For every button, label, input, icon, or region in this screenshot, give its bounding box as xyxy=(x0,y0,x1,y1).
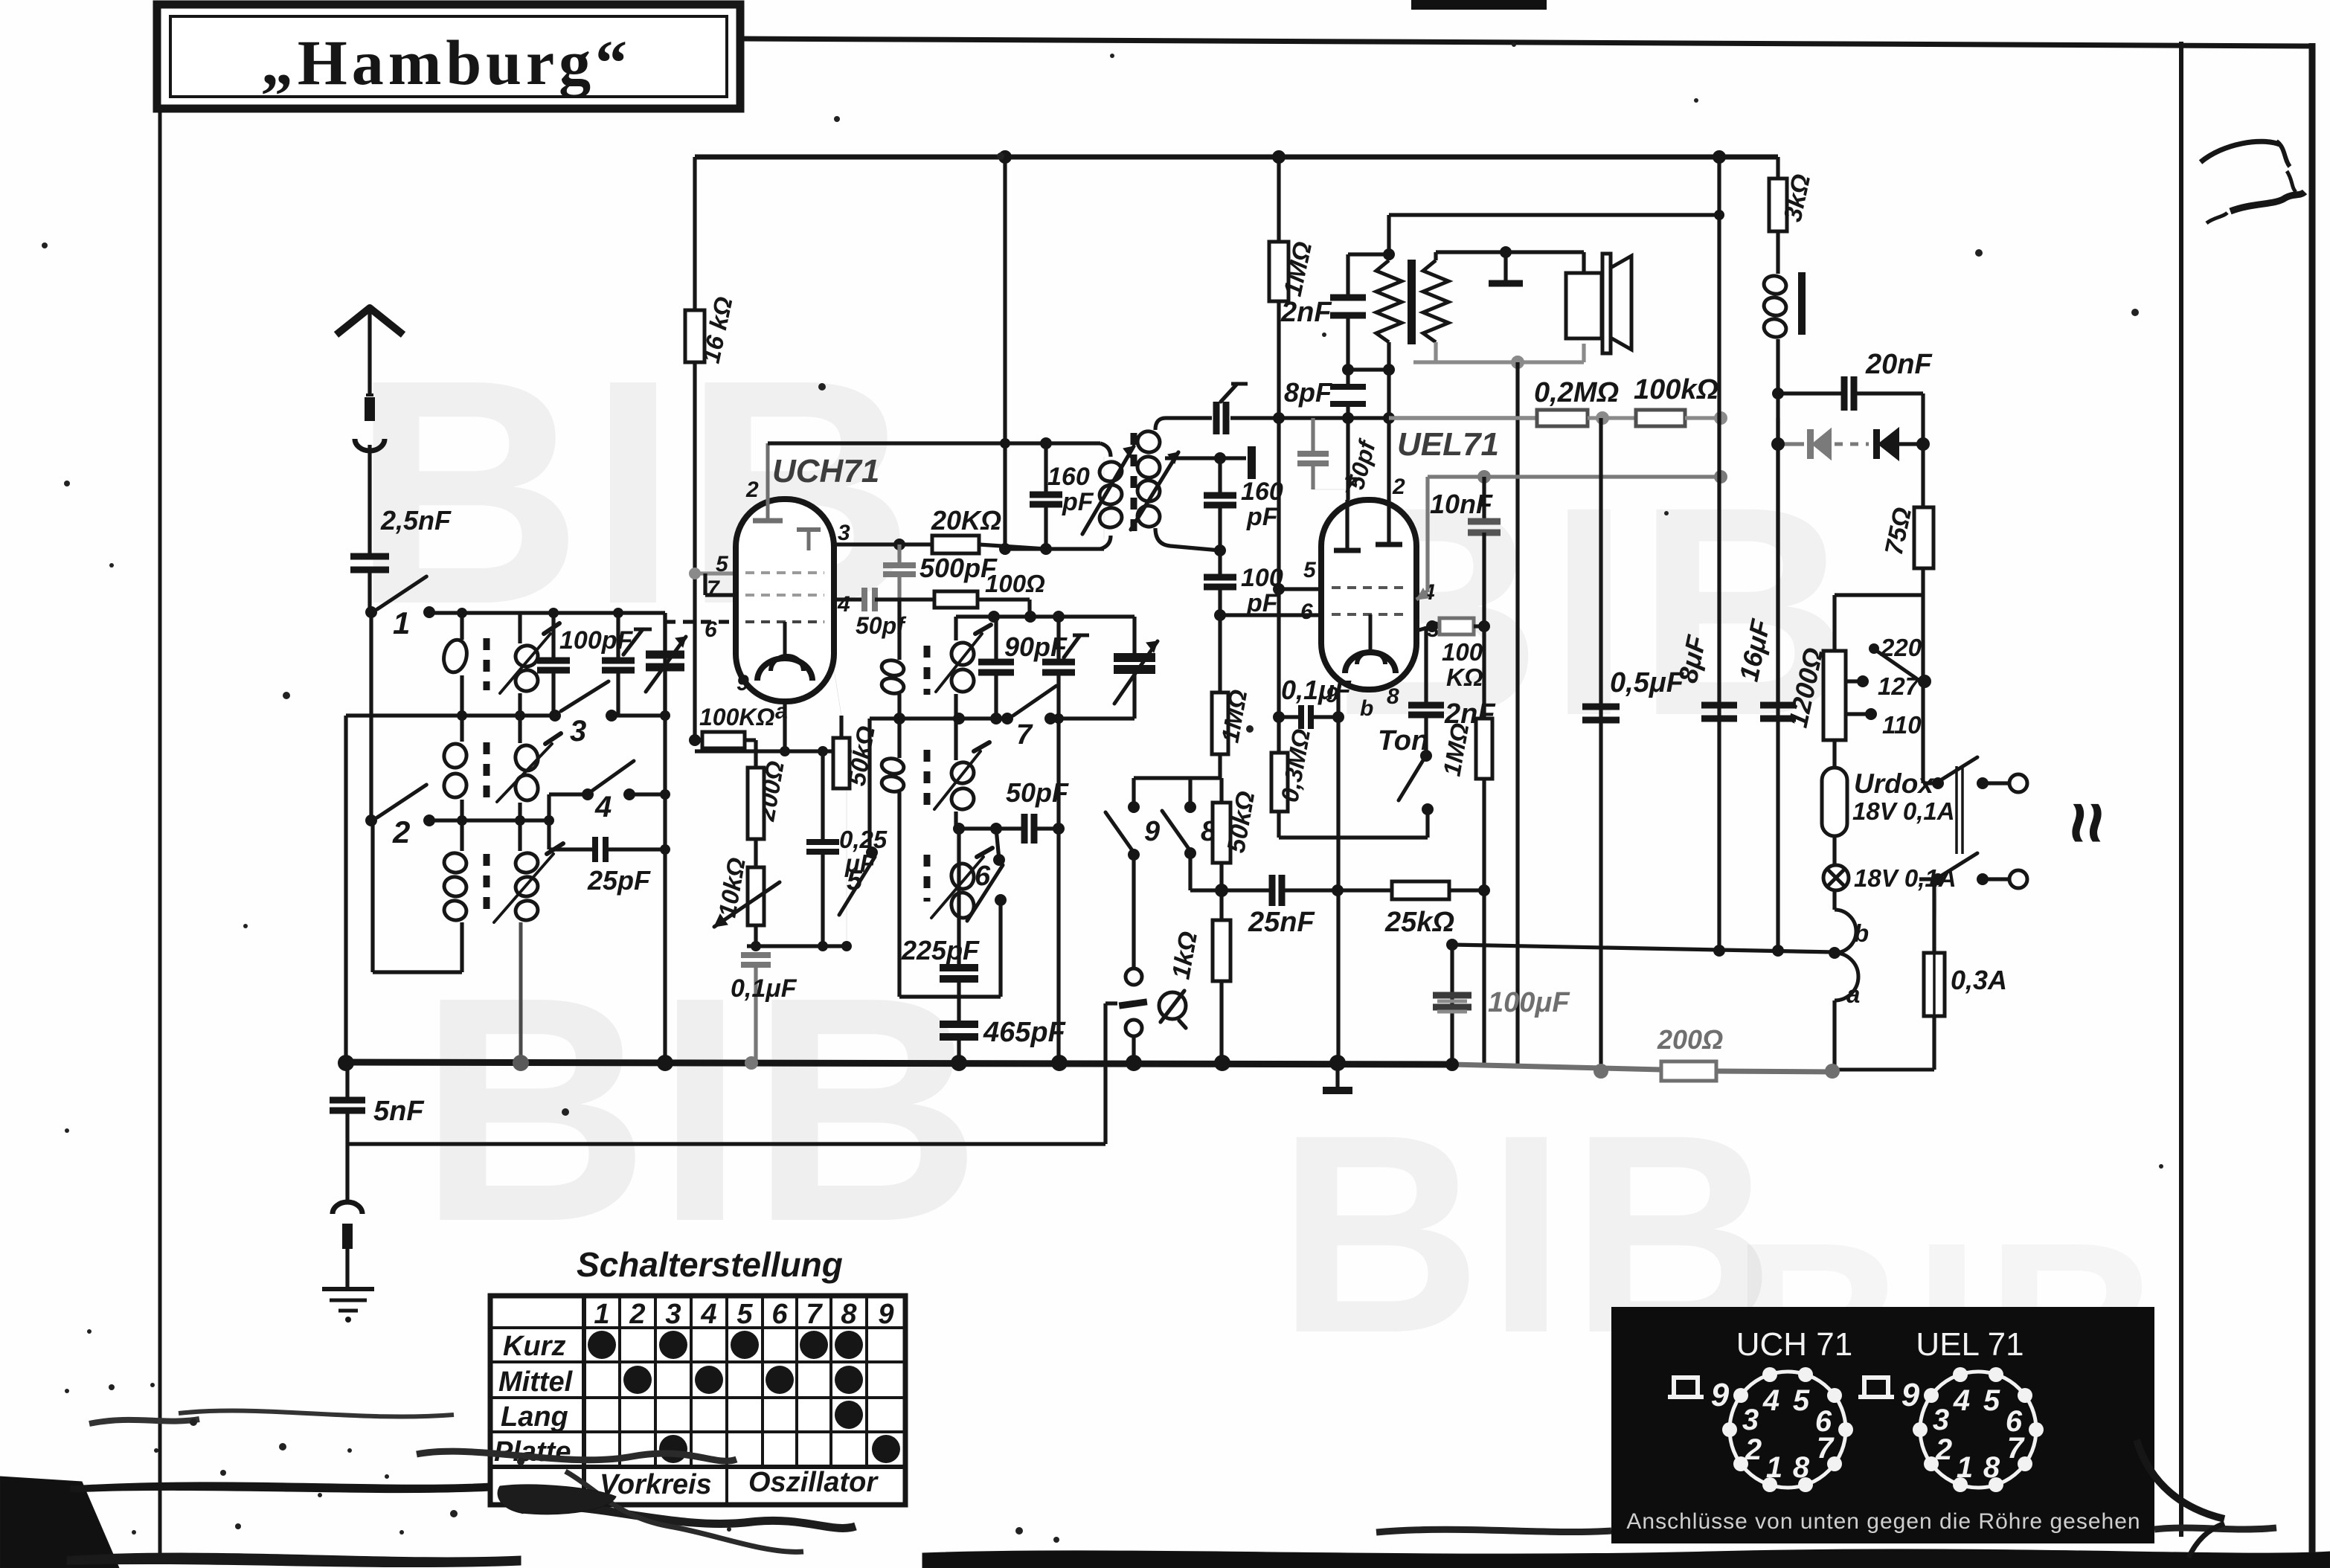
svg-text:2: 2 xyxy=(1392,475,1405,499)
svg-text:0,2MΩ: 0,2MΩ xyxy=(1534,377,1619,408)
svg-text:4: 4 xyxy=(837,592,850,617)
svg-text:pF: pF xyxy=(1246,503,1279,531)
svg-text:3: 3 xyxy=(1933,1404,1949,1436)
svg-text:5: 5 xyxy=(1793,1384,1810,1417)
svg-text:25nF: 25nF xyxy=(1248,907,1315,938)
svg-text:465pF: 465pF xyxy=(983,1017,1067,1048)
svg-text:5: 5 xyxy=(847,865,863,896)
svg-text:8: 8 xyxy=(1387,684,1399,709)
svg-text:160: 160 xyxy=(1047,463,1090,491)
svg-text:7: 7 xyxy=(1817,1432,1835,1465)
svg-text:0,1μF: 0,1μF xyxy=(1281,675,1352,705)
svg-text:a: a xyxy=(1846,980,1860,1008)
svg-text:0,1μF: 0,1μF xyxy=(731,974,797,1003)
svg-text:UEL71: UEL71 xyxy=(1397,426,1499,463)
svg-text:2,5nF: 2,5nF xyxy=(380,505,452,536)
svg-text:Anschlüsse von unten gegen die: Anschlüsse von unten gegen die Röhre ges… xyxy=(1626,1509,2140,1534)
svg-text:2nF: 2nF xyxy=(1280,297,1332,328)
svg-text:4: 4 xyxy=(1762,1384,1779,1417)
svg-text:≈: ≈ xyxy=(2046,802,2129,843)
svg-text:9: 9 xyxy=(1901,1377,1920,1413)
svg-text:100KΩ: 100KΩ xyxy=(699,704,775,730)
svg-text:Mittel: Mittel xyxy=(498,1366,574,1398)
svg-text:110: 110 xyxy=(1882,711,1922,739)
svg-text:Ton: Ton xyxy=(1378,725,1428,756)
svg-text:9: 9 xyxy=(1711,1377,1730,1413)
svg-text:4: 4 xyxy=(1953,1384,1970,1417)
svg-text:5: 5 xyxy=(1303,558,1317,582)
svg-text:Vorkreis: Vorkreis xyxy=(600,1469,712,1500)
svg-text:10nF: 10nF xyxy=(1430,489,1493,519)
svg-text:UEL 71: UEL 71 xyxy=(1916,1326,2023,1363)
svg-text:6: 6 xyxy=(1300,600,1313,624)
svg-text:4: 4 xyxy=(594,791,612,823)
svg-text:25pF: 25pF xyxy=(587,865,651,896)
svg-text:Lang: Lang xyxy=(501,1401,568,1433)
svg-text:2: 2 xyxy=(1745,1433,1762,1466)
svg-text:7: 7 xyxy=(806,1299,823,1330)
svg-text:Schalterstellung: Schalterstellung xyxy=(577,1245,843,1284)
svg-text:5: 5 xyxy=(736,1299,753,1330)
svg-text:UCH71: UCH71 xyxy=(772,453,879,489)
svg-text:2: 2 xyxy=(392,814,410,849)
svg-text:7: 7 xyxy=(1016,719,1033,751)
svg-text:200Ω: 200Ω xyxy=(1657,1024,1723,1055)
svg-text:3: 3 xyxy=(838,521,850,545)
svg-text:8: 8 xyxy=(841,1299,857,1330)
svg-text:3: 3 xyxy=(665,1299,681,1330)
svg-text:1: 1 xyxy=(393,605,410,640)
svg-text:8: 8 xyxy=(1793,1451,1810,1484)
svg-text:b: b xyxy=(1854,919,1869,947)
svg-text:Oszillator: Oszillator xyxy=(748,1467,879,1498)
svg-text:100: 100 xyxy=(1442,638,1483,666)
svg-text:pF: pF xyxy=(1062,488,1094,516)
svg-text:6: 6 xyxy=(771,1299,788,1330)
svg-text:pF: pF xyxy=(1246,589,1279,617)
svg-text:18V 0,1A: 18V 0,1A xyxy=(1852,797,1955,825)
svg-text:100μF: 100μF xyxy=(1488,987,1570,1018)
svg-text:6: 6 xyxy=(705,617,717,642)
svg-text:b: b xyxy=(1360,696,1373,721)
svg-text:100pF: 100pF xyxy=(559,626,633,655)
svg-text:UCH 71: UCH 71 xyxy=(1736,1326,1853,1363)
svg-text:2: 2 xyxy=(1935,1433,1952,1466)
svg-text:4: 4 xyxy=(700,1299,716,1330)
svg-text:3: 3 xyxy=(1742,1404,1759,1436)
svg-text:1: 1 xyxy=(594,1299,609,1330)
svg-text:5: 5 xyxy=(1983,1384,2000,1417)
svg-text:Kurz: Kurz xyxy=(503,1331,565,1362)
svg-text:5nF: 5nF xyxy=(373,1096,425,1127)
svg-text:BIB: BIB xyxy=(419,931,988,1288)
svg-text:6: 6 xyxy=(975,861,991,892)
svg-text:9: 9 xyxy=(878,1299,893,1330)
svg-text:0,3A: 0,3A xyxy=(1951,965,2007,995)
svg-text:„Hamburg“: „Hamburg“ xyxy=(261,27,632,98)
svg-text:8: 8 xyxy=(1983,1451,2000,1484)
svg-text:3: 3 xyxy=(570,715,586,748)
svg-text:100Ω: 100Ω xyxy=(985,570,1045,597)
svg-text:9: 9 xyxy=(736,671,749,695)
svg-text:9: 9 xyxy=(1144,816,1160,847)
svg-text:160: 160 xyxy=(1241,478,1283,506)
svg-text:25kΩ: 25kΩ xyxy=(1384,907,1454,938)
svg-text:8pF: 8pF xyxy=(1284,377,1332,408)
svg-text:20nF: 20nF xyxy=(1865,349,1933,380)
svg-text:1: 1 xyxy=(1957,1451,1973,1484)
svg-text:KΩ: KΩ xyxy=(1446,663,1483,691)
svg-text:2: 2 xyxy=(629,1299,645,1330)
svg-text:5: 5 xyxy=(716,552,729,576)
svg-text:2: 2 xyxy=(745,478,759,502)
svg-text:7: 7 xyxy=(2007,1432,2025,1465)
svg-text:225pF: 225pF xyxy=(901,935,980,965)
svg-text:100kΩ: 100kΩ xyxy=(1634,374,1718,405)
svg-text:20KΩ: 20KΩ xyxy=(931,505,1001,536)
svg-text:1: 1 xyxy=(1766,1451,1782,1484)
svg-text:7: 7 xyxy=(707,576,720,601)
